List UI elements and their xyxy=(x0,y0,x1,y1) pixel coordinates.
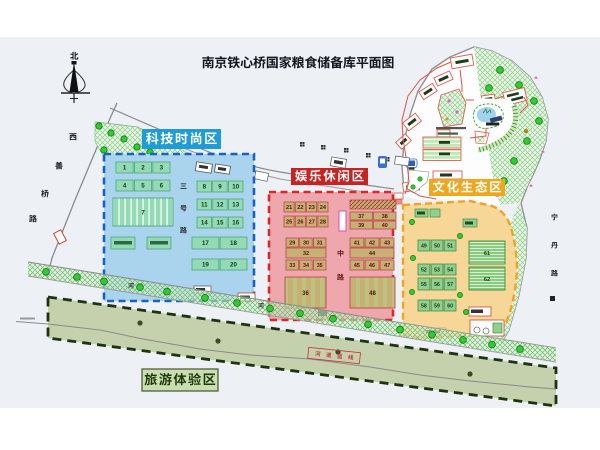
svg-text:34: 34 xyxy=(303,263,309,269)
svg-text:23: 23 xyxy=(309,205,315,211)
svg-text:54: 54 xyxy=(447,267,453,273)
svg-text:26: 26 xyxy=(297,220,303,226)
svg-text:9: 9 xyxy=(218,184,222,191)
svg-text:8: 8 xyxy=(203,184,207,191)
svg-text:38: 38 xyxy=(382,214,388,220)
svg-text:31: 31 xyxy=(317,240,323,246)
svg-text:58: 58 xyxy=(421,303,427,309)
svg-text:37: 37 xyxy=(358,214,364,220)
svg-text:1: 1 xyxy=(123,165,127,172)
svg-text:21: 21 xyxy=(286,205,292,211)
svg-text:11: 11 xyxy=(201,202,208,209)
svg-text:60: 60 xyxy=(447,303,453,309)
svg-text:55: 55 xyxy=(421,282,427,288)
svg-text:7: 7 xyxy=(141,210,145,217)
svg-text:12: 12 xyxy=(217,202,224,209)
svg-text:17: 17 xyxy=(202,240,209,247)
svg-text:2: 2 xyxy=(141,165,145,172)
svg-text:18: 18 xyxy=(230,240,237,247)
svg-text:33: 33 xyxy=(289,263,295,269)
svg-text:32: 32 xyxy=(303,251,309,257)
svg-text:53: 53 xyxy=(434,267,440,273)
svg-text:5: 5 xyxy=(141,183,145,190)
svg-text:39: 39 xyxy=(358,223,364,229)
svg-text:43: 43 xyxy=(384,240,390,246)
svg-text:42: 42 xyxy=(369,240,375,246)
svg-text:3: 3 xyxy=(160,165,164,172)
svg-text:44: 44 xyxy=(369,251,376,257)
svg-text:14: 14 xyxy=(201,220,208,227)
svg-text:22: 22 xyxy=(297,205,303,211)
svg-text:20: 20 xyxy=(230,262,237,269)
svg-text:61: 61 xyxy=(484,251,490,257)
svg-text:30: 30 xyxy=(303,240,309,246)
svg-text:59: 59 xyxy=(434,303,440,309)
svg-text:25: 25 xyxy=(286,220,292,226)
svg-text:57: 57 xyxy=(447,282,453,288)
svg-text:62: 62 xyxy=(484,277,490,283)
svg-text:52: 52 xyxy=(421,267,427,273)
svg-text:49: 49 xyxy=(421,243,427,249)
svg-text:48: 48 xyxy=(369,291,376,297)
svg-text:35: 35 xyxy=(317,263,323,269)
svg-text:16: 16 xyxy=(232,220,239,227)
svg-text:46: 46 xyxy=(369,263,375,269)
svg-text:50: 50 xyxy=(434,243,440,249)
svg-text:27: 27 xyxy=(309,220,315,226)
svg-text:15: 15 xyxy=(217,220,224,227)
svg-text:19: 19 xyxy=(202,262,209,269)
svg-text:40: 40 xyxy=(382,223,388,229)
svg-text:10: 10 xyxy=(232,184,239,191)
svg-text:29: 29 xyxy=(289,240,295,246)
svg-text:45: 45 xyxy=(354,263,360,269)
svg-text:4: 4 xyxy=(123,183,127,190)
svg-text:56: 56 xyxy=(434,282,440,288)
svg-text:51: 51 xyxy=(447,243,453,249)
svg-text:36: 36 xyxy=(302,291,309,297)
svg-text:13: 13 xyxy=(232,202,239,209)
svg-text:41: 41 xyxy=(354,240,360,246)
svg-text:47: 47 xyxy=(384,263,390,269)
svg-text:28: 28 xyxy=(320,220,326,226)
svg-text:6: 6 xyxy=(160,183,164,190)
svg-text:24: 24 xyxy=(320,205,327,211)
